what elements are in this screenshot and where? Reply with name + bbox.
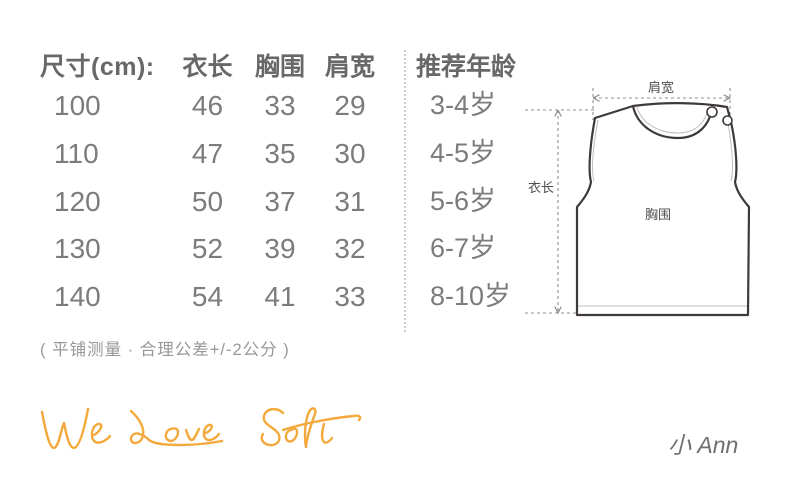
table-row: 120 50 37 31 xyxy=(40,178,380,226)
age-value: 5-6岁 xyxy=(406,178,516,226)
script-love-o xyxy=(166,428,178,440)
length-value: 52 xyxy=(175,225,240,273)
shoulder-button xyxy=(707,107,717,117)
script-we-e xyxy=(92,424,110,443)
table-row: 140 54 41 33 xyxy=(40,273,380,321)
slogan-script xyxy=(36,400,370,462)
measurement-note: ( 平铺测量 · 合理公差+/-2公分 ) xyxy=(40,336,290,360)
age-value: 6-7岁 xyxy=(406,225,516,273)
size-table: 尺寸(cm): 衣长 胸围 肩宽 100 46 33 29 110 47 35 … xyxy=(40,52,380,321)
size-chart-page: 尺寸(cm): 衣长 胸围 肩宽 100 46 33 29 110 47 35 … xyxy=(0,0,790,484)
chest-width-label: 胸围 xyxy=(645,207,671,222)
table-row: 130 52 39 32 xyxy=(40,225,380,273)
age-value: 3-4岁 xyxy=(406,82,516,130)
script-soft-f xyxy=(305,408,315,447)
length-value: 50 xyxy=(175,178,240,226)
chest-value: 41 xyxy=(240,273,320,321)
size-value: 120 xyxy=(40,178,175,226)
age-value: 4-5岁 xyxy=(406,130,516,178)
header-size: 尺寸(cm): xyxy=(40,52,175,82)
script-soft-s xyxy=(262,409,283,445)
script-love-v xyxy=(186,429,199,440)
script-love-e xyxy=(204,425,219,440)
age-column: 推荐年龄 3-4岁 4-5岁 5-6岁 6-7岁 8-10岁 xyxy=(406,52,516,321)
size-value: 110 xyxy=(40,130,175,178)
length-value: 46 xyxy=(175,82,240,130)
table-row: 100 46 33 29 xyxy=(40,82,380,130)
shoulder-value: 29 xyxy=(320,82,380,130)
shoulder-value: 33 xyxy=(320,273,380,321)
shoulder-value: 31 xyxy=(320,178,380,226)
table-row: 110 47 35 30 xyxy=(40,130,380,178)
header-shoulder: 肩宽 xyxy=(320,52,380,82)
chest-value: 39 xyxy=(240,225,320,273)
script-soft-o xyxy=(286,429,297,442)
chest-value: 37 xyxy=(240,178,320,226)
length-value: 47 xyxy=(175,130,240,178)
shoulder-value: 30 xyxy=(320,130,380,178)
chest-value: 33 xyxy=(240,82,320,130)
script-soft-t xyxy=(322,424,332,443)
shoulder-width-label: 肩宽 xyxy=(648,80,674,95)
script-we xyxy=(42,409,88,448)
garment-length-label: 衣长 xyxy=(528,180,554,195)
size-value: 130 xyxy=(40,225,175,273)
brand-name: 小 Ann xyxy=(668,426,738,460)
length-value: 54 xyxy=(175,273,240,321)
header-chest: 胸围 xyxy=(240,52,320,82)
size-value: 140 xyxy=(40,273,175,321)
header-length: 衣长 xyxy=(175,52,240,82)
vest-diagram: 肩宽 衣长 胸围 xyxy=(520,75,780,330)
age-value: 8-10岁 xyxy=(406,273,516,321)
header-age: 推荐年龄 xyxy=(406,52,516,82)
shoulder-button xyxy=(723,116,732,125)
shoulder-value: 32 xyxy=(320,225,380,273)
chest-value: 35 xyxy=(240,130,320,178)
size-value: 100 xyxy=(40,82,175,130)
table-header-row: 尺寸(cm): 衣长 胸围 肩宽 xyxy=(40,52,380,82)
